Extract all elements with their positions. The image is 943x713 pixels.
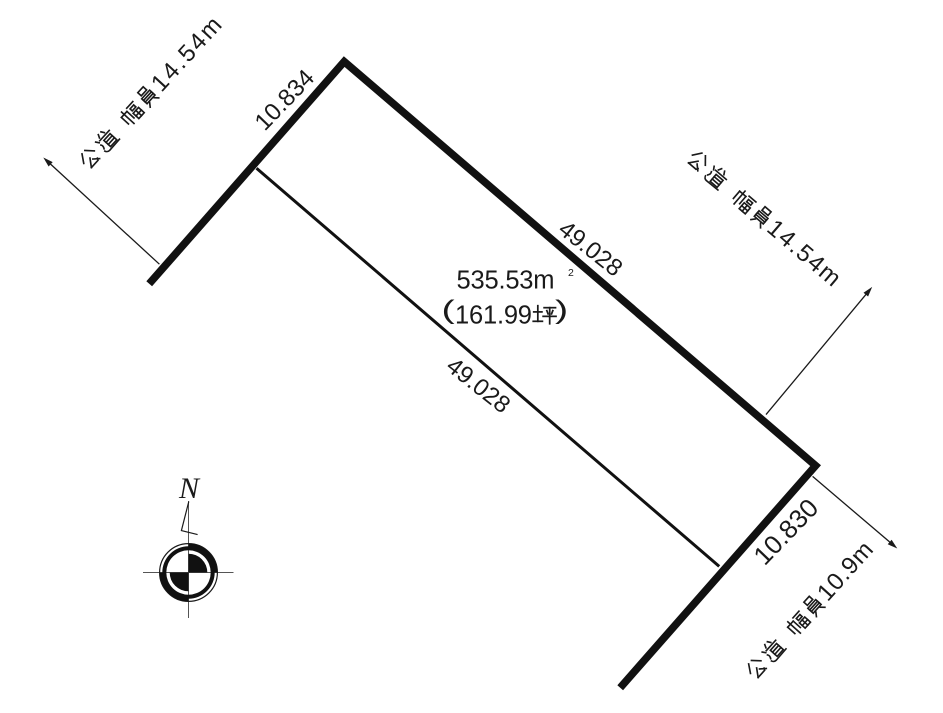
svg-text:): ): [555, 296, 568, 324]
svg-text:161.99: 161.99: [455, 301, 532, 329]
svg-text:(: (: [442, 296, 455, 324]
svg-text:2: 2: [568, 267, 574, 279]
svg-text:535.53m: 535.53m: [457, 266, 555, 294]
svg-text:N: N: [178, 472, 201, 505]
